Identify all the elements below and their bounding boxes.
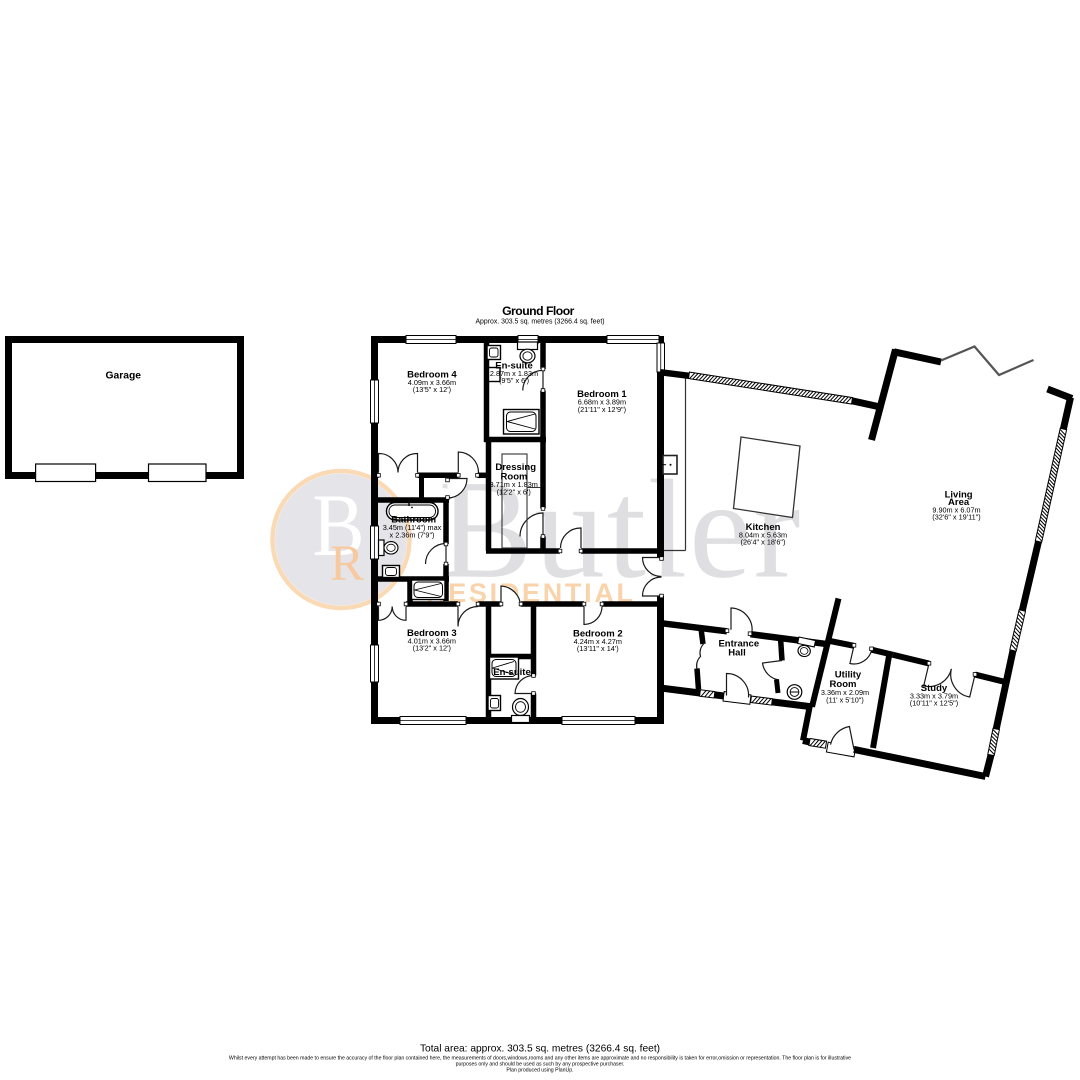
- svg-text:Total area: approx. 303.5 sq.: Total area: approx. 303.5 sq. metres (32…: [420, 1044, 660, 1055]
- svg-text:Garage: Garage: [106, 371, 142, 382]
- svg-text:(13'5" x 12'): (13'5" x 12'): [413, 385, 451, 394]
- svg-text:Plan produced using PlanUp.: Plan produced using PlanUp.: [506, 1068, 573, 1074]
- svg-text:(21'11" x 12'9"): (21'11" x 12'9"): [578, 405, 626, 414]
- svg-text:R: R: [330, 536, 364, 592]
- svg-text:(12'2" x 6'): (12'2" x 6'): [497, 488, 531, 497]
- svg-text:Approx. 303.5 sq. metres (3266: Approx. 303.5 sq. metres (3266.4 sq. fee…: [475, 319, 604, 326]
- svg-text:(10'11" x 12'5"): (10'11" x 12'5"): [910, 699, 958, 708]
- svg-text:(26'4" x 18'6"): (26'4" x 18'6"): [741, 538, 786, 547]
- svg-text:En-suite: En-suite: [493, 667, 530, 678]
- svg-text:Hall: Hall: [728, 648, 745, 659]
- svg-text:(9'5" x 6'): (9'5" x 6'): [499, 376, 529, 385]
- svg-text:(13'2" x 12'): (13'2" x 12'): [413, 644, 451, 653]
- svg-text:(13'11" x 14'): (13'11" x 14'): [577, 644, 619, 653]
- svg-text:(11' x 5'10"): (11' x 5'10"): [826, 695, 864, 704]
- svg-text:x 2.36m (7'9"): x 2.36m (7'9"): [390, 531, 435, 540]
- svg-text:(32'6" x 19'11"): (32'6" x 19'11"): [932, 513, 980, 522]
- svg-text:Ground Floor: Ground Floor: [502, 304, 575, 318]
